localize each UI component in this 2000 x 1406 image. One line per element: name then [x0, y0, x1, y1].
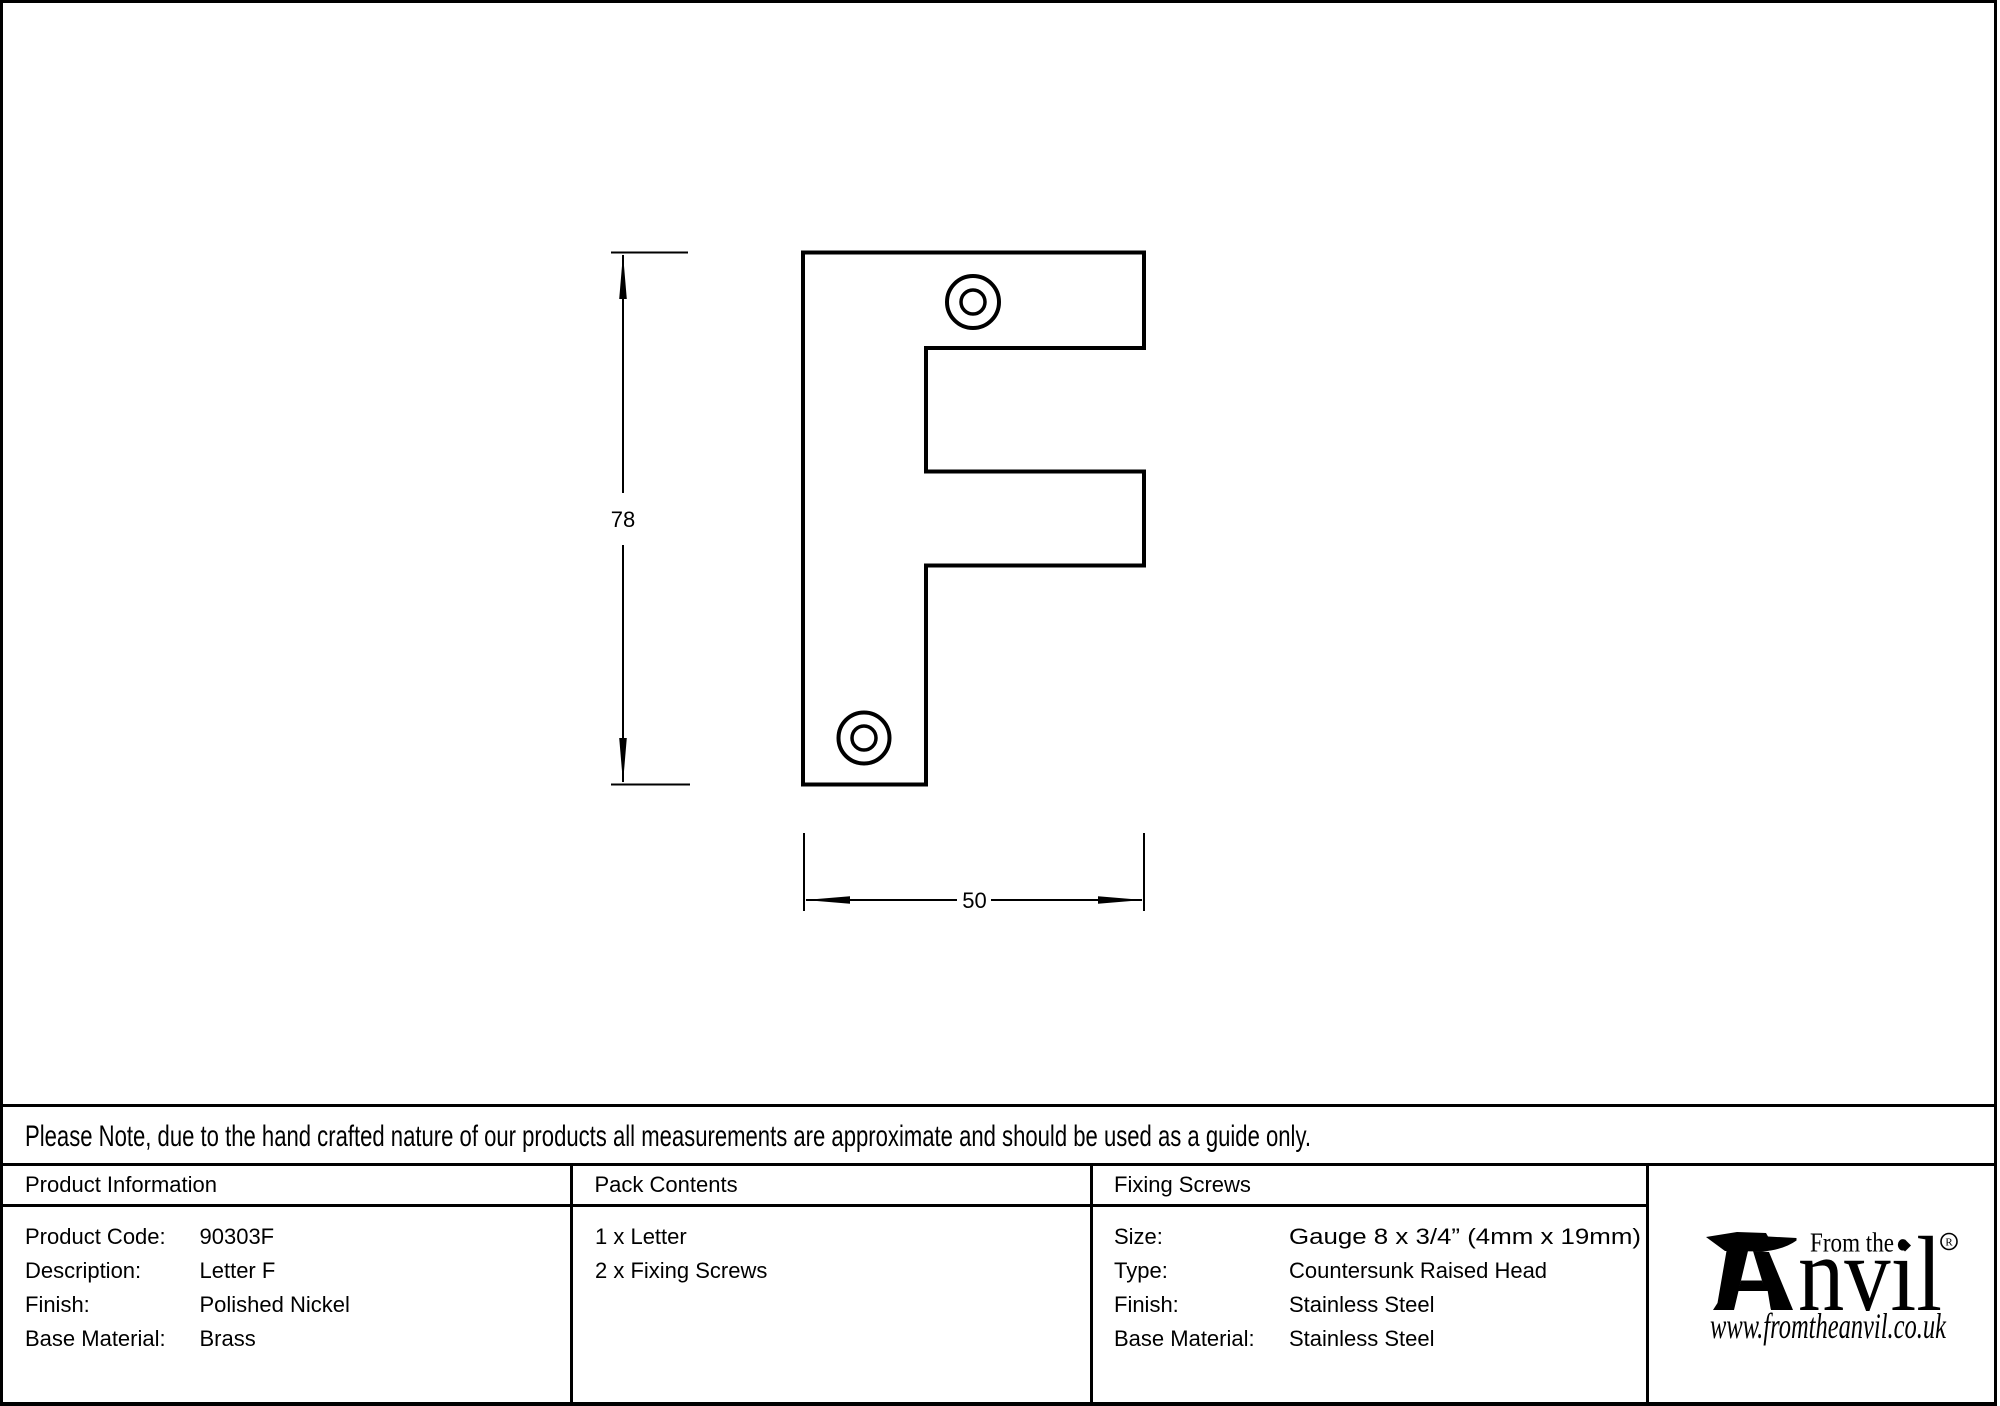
svg-text:Pack Contents: Pack Contents	[595, 1172, 738, 1197]
svg-text:Size:: Size:	[1114, 1224, 1163, 1249]
svg-text:Finish:: Finish:	[1114, 1292, 1179, 1317]
svg-text:Gauge 8 x 3/4” (4mm x 19mm): Gauge 8 x 3/4” (4mm x 19mm)	[1289, 1224, 1641, 1249]
svg-text:Product Code:: Product Code:	[25, 1224, 166, 1249]
svg-text:Letter F: Letter F	[200, 1258, 276, 1283]
svg-text:R: R	[1945, 1237, 1953, 1249]
svg-text:Product Information: Product Information	[25, 1172, 217, 1197]
svg-text:www.fromtheanvil.co.uk: www.fromtheanvil.co.uk	[1710, 1306, 1947, 1346]
svg-text:1 x Letter: 1 x Letter	[595, 1224, 687, 1249]
svg-text:Stainless Steel: Stainless Steel	[1289, 1326, 1435, 1351]
svg-text:50: 50	[962, 888, 986, 913]
svg-text:Description:: Description:	[25, 1258, 141, 1283]
svg-text:Countersunk Raised Head: Countersunk Raised Head	[1289, 1258, 1547, 1283]
svg-text:Brass: Brass	[200, 1326, 256, 1351]
svg-text:Stainless Steel: Stainless Steel	[1289, 1292, 1435, 1317]
svg-text:90303F: 90303F	[200, 1224, 275, 1249]
svg-text:Finish:: Finish:	[25, 1292, 90, 1317]
svg-text:78: 78	[611, 507, 635, 532]
svg-text:Please Note, due to the hand c: Please Note, due to the hand crafted nat…	[25, 1120, 1311, 1153]
svg-text:Type:: Type:	[1114, 1258, 1168, 1283]
svg-text:Base Material:: Base Material:	[1114, 1326, 1255, 1351]
svg-text:Polished Nickel: Polished Nickel	[200, 1292, 350, 1317]
svg-text:Fixing Screws: Fixing Screws	[1114, 1172, 1251, 1197]
svg-text:2 x Fixing Screws: 2 x Fixing Screws	[595, 1258, 767, 1283]
svg-text:Base Material:: Base Material:	[25, 1326, 166, 1351]
